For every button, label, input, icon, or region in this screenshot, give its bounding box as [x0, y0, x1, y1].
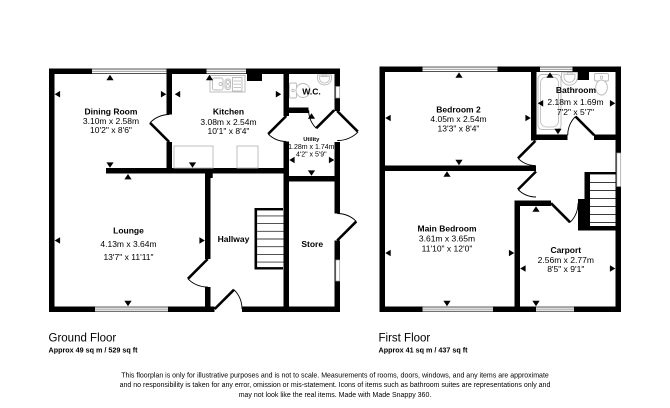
- svg-text:This floorplan is only for ill: This floorplan is only for illustrative …: [121, 373, 549, 380]
- svg-text:Carport: Carport: [550, 245, 581, 255]
- svg-text:1.28m x 1.74m: 1.28m x 1.74m: [288, 144, 334, 151]
- svg-text:8'5" x 9'1": 8'5" x 9'1": [547, 264, 584, 274]
- svg-text:and no responsibility is taken: and no responsibility is taken for any e…: [120, 382, 551, 389]
- svg-text:Hallway: Hallway: [218, 234, 250, 244]
- svg-text:Bedroom 2: Bedroom 2: [436, 105, 481, 115]
- svg-text:4'2" x 5'9": 4'2" x 5'9": [296, 152, 327, 159]
- svg-text:Lounge: Lounge: [113, 226, 144, 236]
- svg-text:First Floor: First Floor: [379, 333, 431, 345]
- svg-text:2.18m x 1.69m: 2.18m x 1.69m: [547, 97, 603, 107]
- svg-text:10'1" x 8'4": 10'1" x 8'4": [208, 126, 250, 136]
- svg-text:11'10" x 12'0": 11'10" x 12'0": [422, 244, 473, 254]
- svg-text:Ground Floor: Ground Floor: [49, 333, 117, 345]
- svg-text:Bathroom: Bathroom: [556, 85, 597, 95]
- svg-text:Store: Store: [301, 239, 323, 249]
- svg-text:7'2" x 5'7": 7'2" x 5'7": [557, 107, 594, 117]
- svg-text:Dining Room: Dining Room: [85, 107, 138, 117]
- svg-text:13'3" x 8'4": 13'3" x 8'4": [438, 123, 480, 133]
- svg-text:3.61m x 3.65m: 3.61m x 3.65m: [419, 233, 475, 243]
- svg-text:13'7" x 11'11": 13'7" x 11'11": [103, 252, 153, 262]
- svg-text:4.13m x 3.64m: 4.13m x 3.64m: [100, 239, 156, 249]
- svg-text:10'2" x 8'6": 10'2" x 8'6": [90, 125, 132, 135]
- svg-text:Main Bedroom: Main Bedroom: [417, 224, 476, 234]
- svg-text:Utility: Utility: [303, 137, 320, 143]
- svg-text:Approx 49 sq m / 529 sq ft: Approx 49 sq m / 529 sq ft: [49, 346, 139, 355]
- svg-text:Approx 41 sq m / 437 sq ft: Approx 41 sq m / 437 sq ft: [379, 346, 469, 355]
- svg-text:W.C.: W.C.: [302, 87, 320, 97]
- svg-text:Kitchen: Kitchen: [213, 106, 244, 116]
- svg-text:may not look like the real ite: may not look like the real items. Made w…: [239, 392, 432, 399]
